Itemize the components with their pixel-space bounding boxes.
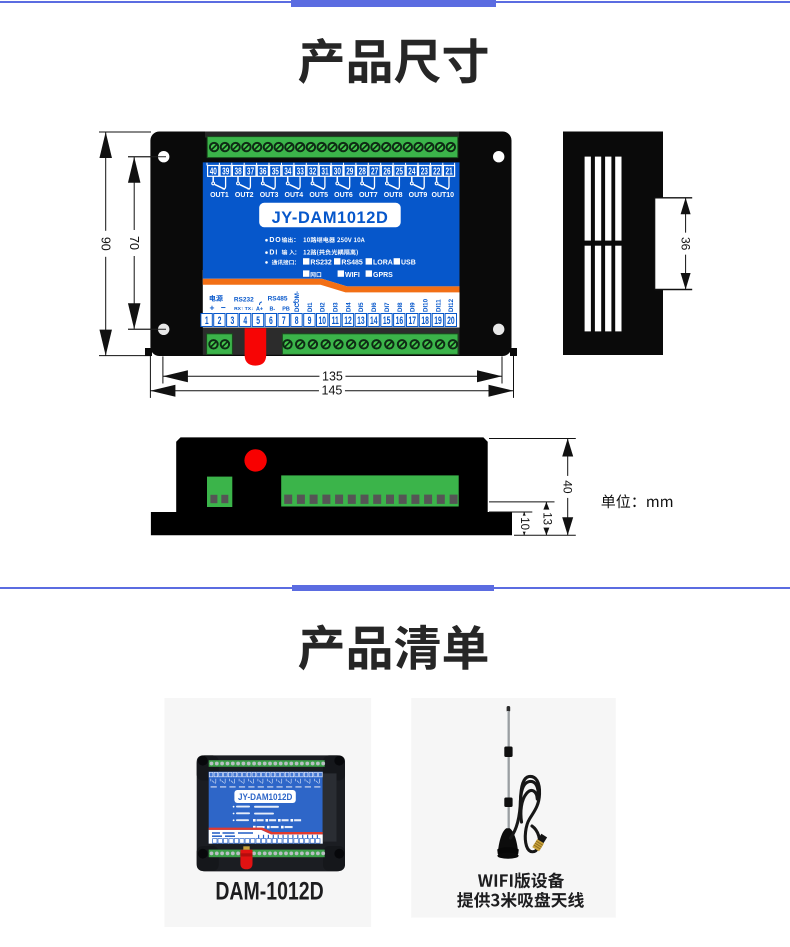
svg-text:RS232: RS232	[310, 260, 332, 267]
svg-text:DI8: DI8	[397, 302, 404, 312]
svg-text:OUT7: OUT7	[359, 192, 378, 199]
svg-text:8: 8	[295, 315, 299, 327]
svg-text:34: 34	[284, 165, 291, 177]
svg-text:24: 24	[408, 165, 415, 177]
svg-text:14: 14	[370, 315, 378, 327]
svg-text:18: 18	[421, 315, 429, 327]
svg-text:32: 32	[309, 165, 316, 177]
svg-text:25: 25	[396, 165, 403, 177]
svg-text::: :	[294, 237, 296, 244]
svg-text:15: 15	[383, 315, 391, 327]
svg-text:DI12: DI12	[448, 298, 455, 312]
svg-text:17: 17	[409, 315, 417, 327]
svg-text:RS485: RS485	[268, 296, 288, 303]
svg-text:DI: DI	[269, 250, 278, 257]
svg-text:OUT6: OUT6	[334, 192, 353, 199]
svg-text:7: 7	[282, 315, 286, 327]
svg-text:26: 26	[383, 165, 390, 177]
svg-text:90: 90	[99, 237, 113, 251]
svg-text:DI1: DI1	[307, 302, 314, 312]
svg-text:27: 27	[371, 165, 378, 177]
svg-text:RS485: RS485	[341, 260, 363, 267]
svg-text:36: 36	[679, 237, 693, 251]
svg-text:145: 145	[322, 384, 343, 398]
svg-text:10: 10	[518, 517, 530, 530]
svg-text:WIFI: WIFI	[345, 272, 360, 279]
svg-text:40: 40	[561, 480, 575, 494]
svg-text:10: 10	[319, 315, 327, 327]
svg-text:40: 40	[210, 165, 217, 177]
svg-text:135: 135	[322, 369, 343, 383]
svg-text:1: 1	[205, 315, 209, 327]
svg-text:B-: B-	[269, 307, 275, 313]
svg-text:DAM-1012D: DAM-1012D	[215, 877, 323, 905]
svg-text:USB: USB	[401, 260, 416, 267]
svg-text:39: 39	[222, 165, 229, 177]
svg-text:PB: PB	[282, 307, 290, 313]
svg-text:29: 29	[346, 165, 353, 177]
svg-text:16: 16	[396, 315, 404, 327]
svg-text:4: 4	[243, 315, 247, 327]
svg-text::: :	[295, 250, 297, 257]
svg-text:DI2: DI2	[320, 302, 327, 312]
svg-text:OUT2: OUT2	[235, 192, 254, 199]
svg-text:DI11: DI11	[435, 299, 442, 312]
svg-text:11: 11	[332, 315, 339, 327]
svg-text:21: 21	[446, 165, 453, 177]
svg-text:LORA: LORA	[373, 260, 393, 267]
svg-text:OUT4: OUT4	[285, 192, 304, 199]
svg-text:DI7: DI7	[384, 302, 391, 312]
svg-text:RX↑ TX↓: RX↑ TX↓	[234, 306, 253, 312]
svg-text:GPRS: GPRS	[373, 272, 393, 279]
svg-text:28: 28	[359, 165, 366, 177]
svg-text:9: 9	[308, 315, 312, 327]
svg-text:35: 35	[272, 165, 279, 177]
svg-text:+: +	[210, 303, 215, 313]
svg-text:DI4: DI4	[345, 302, 352, 312]
svg-text:A+: A+	[256, 307, 263, 313]
svg-text:20: 20	[447, 315, 455, 327]
svg-text:DI5: DI5	[358, 302, 365, 312]
svg-text:DI6: DI6	[371, 302, 378, 312]
svg-text:JY-DAM1012D: JY-DAM1012D	[272, 209, 389, 227]
svg-text:−: −	[221, 303, 226, 313]
svg-text:12: 12	[344, 315, 352, 327]
svg-text:3: 3	[231, 315, 235, 327]
svg-text:23: 23	[421, 165, 428, 177]
svg-text:DO: DO	[269, 237, 281, 244]
svg-text:OUT8: OUT8	[384, 192, 403, 199]
svg-text:13: 13	[540, 512, 552, 525]
svg-text:6: 6	[269, 315, 273, 327]
svg-text:37: 37	[247, 165, 254, 177]
svg-text:JY-DAM1012D: JY-DAM1012D	[238, 792, 292, 802]
svg-text:OUT9: OUT9	[409, 192, 428, 199]
svg-text:19: 19	[434, 315, 442, 327]
svg-text:5: 5	[256, 315, 260, 327]
svg-text::: :	[294, 260, 296, 267]
svg-text:OUT1: OUT1	[210, 192, 229, 199]
svg-text:OUT10: OUT10	[432, 192, 455, 199]
svg-text:DI3: DI3	[333, 302, 340, 312]
svg-text:OUT5: OUT5	[309, 192, 328, 199]
svg-text:31: 31	[321, 165, 328, 177]
svg-text:2: 2	[218, 315, 222, 327]
svg-text:DI10: DI10	[423, 298, 430, 312]
svg-text:RS232: RS232	[234, 297, 254, 304]
svg-text:38: 38	[235, 165, 242, 177]
svg-text:33: 33	[297, 165, 304, 177]
svg-text:36: 36	[259, 165, 266, 177]
svg-text:DCOM-: DCOM-	[294, 291, 301, 312]
svg-text:22: 22	[433, 165, 440, 177]
svg-text:OUT3: OUT3	[260, 192, 279, 199]
svg-text:DI9: DI9	[410, 302, 417, 312]
svg-text:13: 13	[357, 315, 365, 327]
svg-text:70: 70	[127, 236, 141, 250]
svg-text:30: 30	[334, 165, 341, 177]
